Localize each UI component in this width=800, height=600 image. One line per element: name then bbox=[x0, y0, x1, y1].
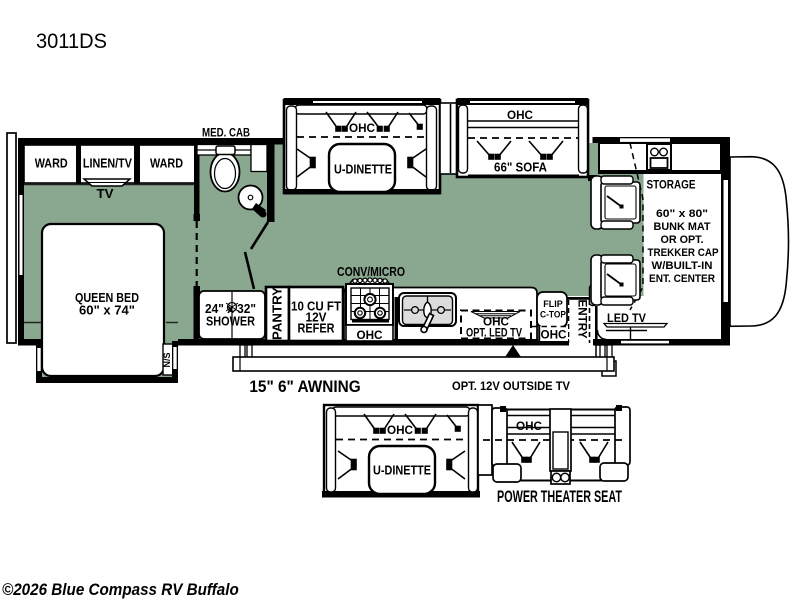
svg-text:STORAGE: STORAGE bbox=[647, 179, 696, 192]
svg-text:SHOWER: SHOWER bbox=[206, 315, 255, 329]
svg-text:OR OPT.: OR OPT. bbox=[660, 234, 703, 246]
svg-text:3011DS: 3011DS bbox=[36, 30, 107, 54]
svg-text:15" 6" AWNING: 15" 6" AWNING bbox=[249, 377, 360, 396]
svg-text:66" SOFA: 66" SOFA bbox=[494, 160, 547, 175]
svg-text:ENT. CENTER: ENT. CENTER bbox=[649, 273, 715, 286]
svg-text:OHC: OHC bbox=[357, 328, 383, 342]
svg-text:OHC: OHC bbox=[507, 108, 533, 122]
svg-text:W/BUILT-IN: W/BUILT-IN bbox=[652, 260, 713, 272]
svg-text:OHC: OHC bbox=[516, 419, 542, 433]
svg-text:MED. CAB: MED. CAB bbox=[202, 127, 250, 140]
svg-text:TV: TV bbox=[96, 186, 113, 201]
svg-text:PANTRY: PANTRY bbox=[270, 287, 285, 340]
svg-text:C-TOP: C-TOP bbox=[540, 309, 566, 319]
svg-text:U-DINETTE: U-DINETTE bbox=[373, 464, 431, 478]
svg-text:U-DINETTE: U-DINETTE bbox=[334, 163, 392, 177]
svg-text:ENTRY: ENTRY bbox=[575, 299, 589, 338]
svg-text:WARD: WARD bbox=[150, 155, 183, 170]
svg-text:REFER: REFER bbox=[298, 322, 335, 336]
svg-text:CONV/MICRO: CONV/MICRO bbox=[337, 266, 405, 279]
svg-text:LINEN/TV: LINEN/TV bbox=[83, 155, 132, 170]
svg-text:©2026 Blue Compass RV Buffalo: ©2026 Blue Compass RV Buffalo bbox=[2, 580, 239, 599]
svg-text:OHC: OHC bbox=[387, 423, 413, 437]
svg-text:TREKKER CAP: TREKKER CAP bbox=[647, 246, 718, 259]
svg-text:BUNK MAT: BUNK MAT bbox=[653, 221, 710, 233]
svg-text:60" x 80": 60" x 80" bbox=[656, 207, 708, 219]
svg-text:LED TV: LED TV bbox=[607, 313, 646, 325]
svg-text:N/S: N/S bbox=[162, 353, 172, 368]
svg-text:FLIP: FLIP bbox=[543, 299, 563, 309]
svg-text:OHC: OHC bbox=[349, 121, 375, 135]
svg-text:POWER THEATER SEAT: POWER THEATER SEAT bbox=[497, 488, 622, 507]
svg-text:OPT. LED TV: OPT. LED TV bbox=[466, 326, 523, 339]
svg-text:OHC: OHC bbox=[541, 327, 567, 341]
svg-text:OPT. 12V OUTSIDE TV: OPT. 12V OUTSIDE TV bbox=[452, 378, 570, 393]
svg-text:60" x 74": 60" x 74" bbox=[79, 303, 135, 318]
svg-text:WARD: WARD bbox=[35, 155, 68, 170]
